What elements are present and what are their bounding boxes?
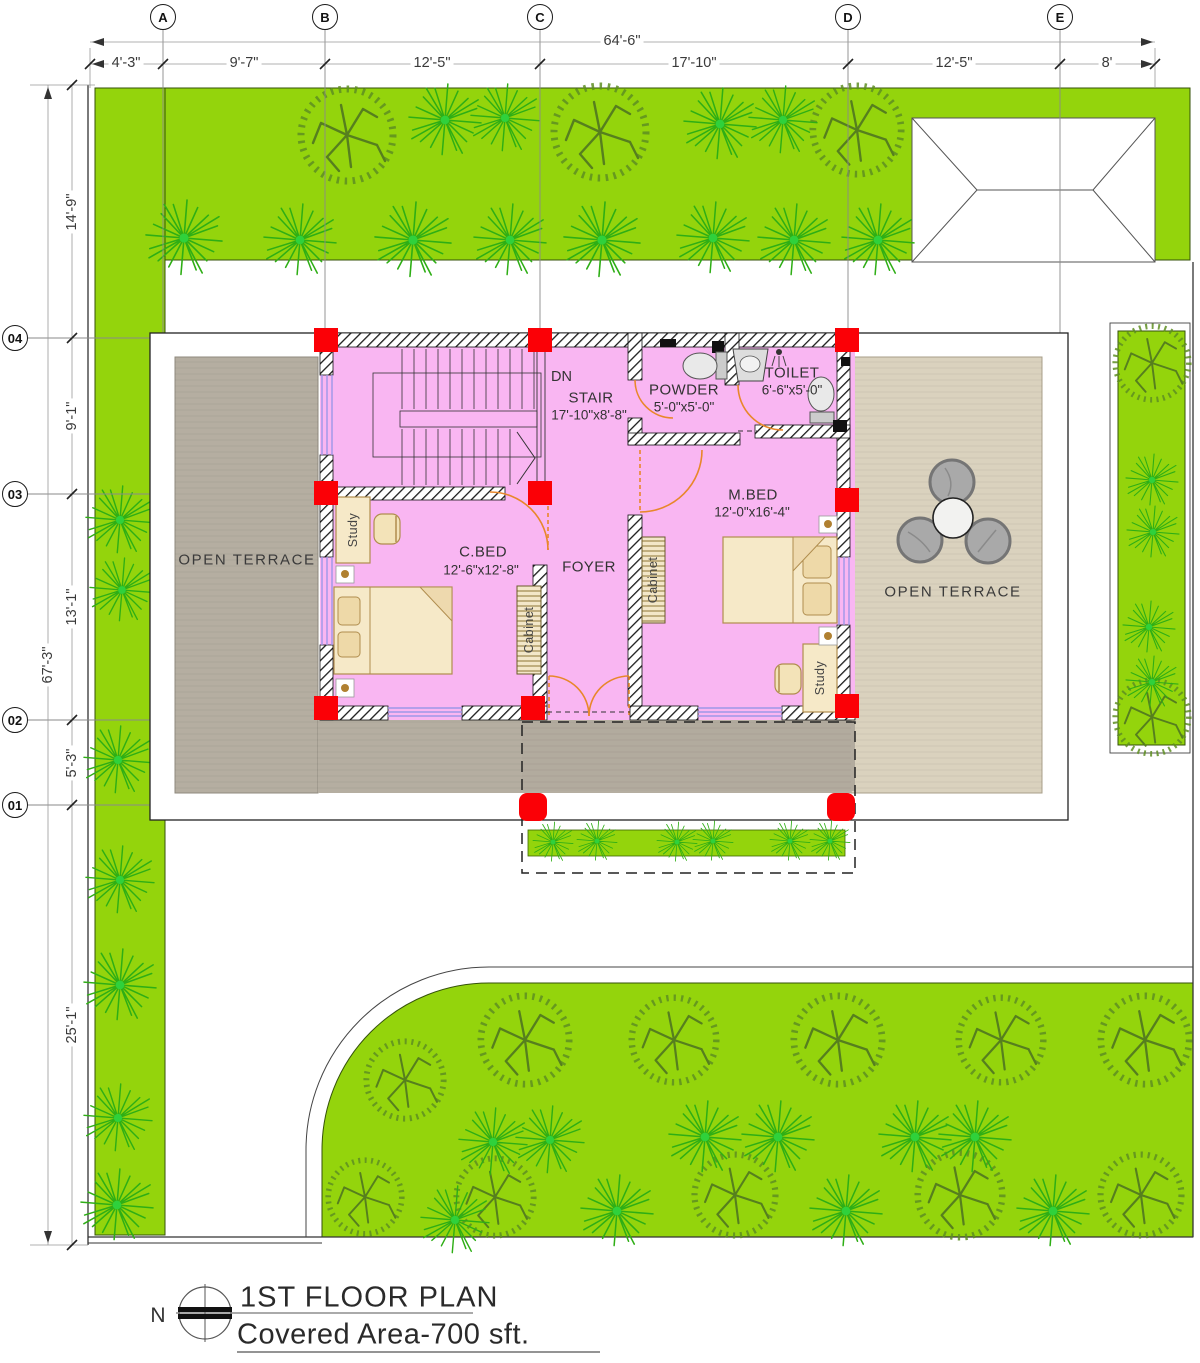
- dim-top-overall: 64'-6": [601, 33, 644, 49]
- floor-plan-drawing: [0, 0, 1200, 1363]
- powder-size: 5'-0"x5'-0": [654, 400, 715, 415]
- grid-bubble-col-d: D: [835, 4, 861, 30]
- cbed-size: 12'-6"x12'-8": [443, 563, 519, 578]
- porch-roof: [912, 118, 1155, 262]
- mbed-label: M.BED: [728, 487, 778, 504]
- dim-top-seg-1: 4'-3": [109, 55, 144, 71]
- foyer-label: FOYER: [562, 559, 616, 576]
- cbed-label: C.BED: [459, 544, 507, 561]
- grid-bubble-col-c: C: [527, 4, 553, 30]
- grid-bubble-col-a: A: [150, 4, 176, 30]
- grid-bubble-row-01: 01: [2, 792, 28, 818]
- dim-top-seg-3: 12'-5": [411, 55, 454, 71]
- grid-bubble-row-03: 03: [2, 481, 28, 507]
- dim-left-overall: 67'-3": [40, 644, 56, 687]
- toilet-size: 6'-6"x5'-0": [762, 383, 823, 398]
- floor-plan-sheet: A B C D E 04 03 02 01 64'-6" 4'-3" 9'-7"…: [0, 0, 1200, 1363]
- grid-bubble-col-e: E: [1047, 4, 1073, 30]
- cbed-study-label: Study: [346, 513, 360, 547]
- mbed-size: 12'-0"x16'-4": [714, 505, 790, 520]
- dim-left-seg-2: 9'-1": [64, 399, 80, 434]
- dim-top-seg-2: 9'-7": [227, 55, 262, 71]
- dim-left-seg-4: 5'-3": [64, 746, 80, 781]
- grid-bubble-col-b: B: [312, 4, 338, 30]
- north-label: N: [150, 1304, 165, 1328]
- cbed-cabinet-label: Cabinet: [522, 607, 536, 654]
- mbed-study-label: Study: [813, 661, 827, 695]
- terrace-left-label: OPEN TERRACE: [178, 552, 315, 569]
- dim-top-seg-6: 8': [1099, 55, 1116, 71]
- grid-bubble-row-04: 04: [2, 325, 28, 351]
- terrace-right-label: OPEN TERRACE: [884, 584, 1021, 601]
- plan-subtitle: Covered Area-700 sft.: [237, 1319, 530, 1352]
- dim-top-seg-4: 17'-10": [668, 55, 719, 71]
- toilet-label: TOILET: [765, 365, 820, 382]
- plan-title: 1ST FLOOR PLAN: [240, 1282, 498, 1315]
- powder-label: POWDER: [649, 382, 719, 399]
- dim-left-seg-1: 14'-9": [64, 191, 80, 234]
- dim-left-seg-5: 25'-1": [64, 1004, 80, 1047]
- mbed-cabinet-label: Cabinet: [646, 557, 660, 604]
- stair-label: STAIR: [568, 390, 613, 407]
- dim-left-seg-3: 13'-1": [64, 586, 80, 629]
- grid-bubble-row-02: 02: [2, 707, 28, 733]
- stair-size: 17'-10"x8'-8": [551, 408, 627, 423]
- stair-direction-label: DN: [551, 369, 572, 385]
- dim-top-seg-5: 12'-5": [933, 55, 976, 71]
